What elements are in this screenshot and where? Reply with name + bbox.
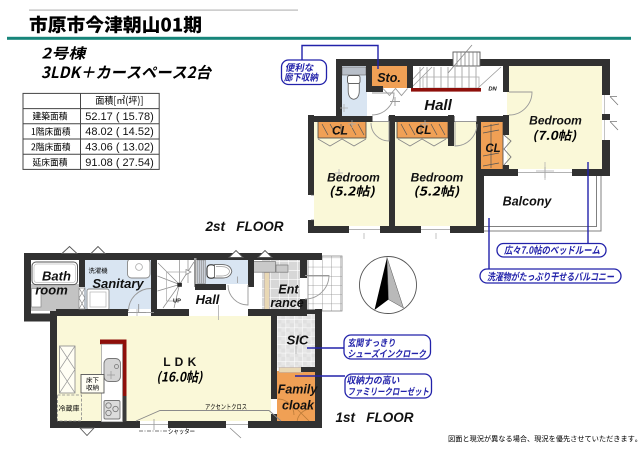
- svg-text:Balcony: Balcony: [503, 195, 553, 209]
- svg-text:Bath: Bath: [42, 269, 71, 284]
- svg-text:cloak: cloak: [282, 399, 315, 413]
- svg-text:Ent: Ent: [278, 283, 299, 297]
- svg-text:room: room: [35, 283, 68, 298]
- svg-text:UP: UP: [173, 299, 181, 305]
- svg-text:CL: CL: [485, 143, 500, 155]
- svg-text:91.08 ( 27.54): 91.08 ( 27.54): [85, 157, 154, 169]
- svg-text:Sanitary: Sanitary: [92, 276, 144, 291]
- svg-text:Hall: Hall: [424, 97, 452, 114]
- svg-text:Sto.: Sto.: [377, 71, 401, 85]
- svg-text:Hall: Hall: [196, 292, 220, 307]
- svg-text:Bedroom: Bedroom: [411, 171, 464, 185]
- svg-text:2st FLOOR: 2st FLOOR: [204, 219, 283, 234]
- svg-text:Family: Family: [278, 383, 319, 397]
- svg-text:43.06 ( 13.02): 43.06 ( 13.02): [85, 142, 154, 154]
- svg-text:SIC: SIC: [287, 333, 309, 348]
- svg-text:48.02 ( 14.52): 48.02 ( 14.52): [85, 126, 154, 138]
- svg-text:52.17 ( 15.78): 52.17 ( 15.78): [85, 111, 154, 123]
- svg-text:Bedroom: Bedroom: [529, 114, 582, 128]
- svg-text:CL: CL: [416, 123, 432, 137]
- svg-text:CL: CL: [332, 124, 348, 138]
- svg-text:1st FLOOR: 1st FLOOR: [335, 410, 413, 425]
- svg-text:DN: DN: [488, 87, 497, 93]
- svg-text:L D K: L D K: [163, 355, 197, 369]
- svg-text:Bedroom: Bedroom: [327, 171, 380, 185]
- svg-text:rance: rance: [270, 296, 303, 310]
